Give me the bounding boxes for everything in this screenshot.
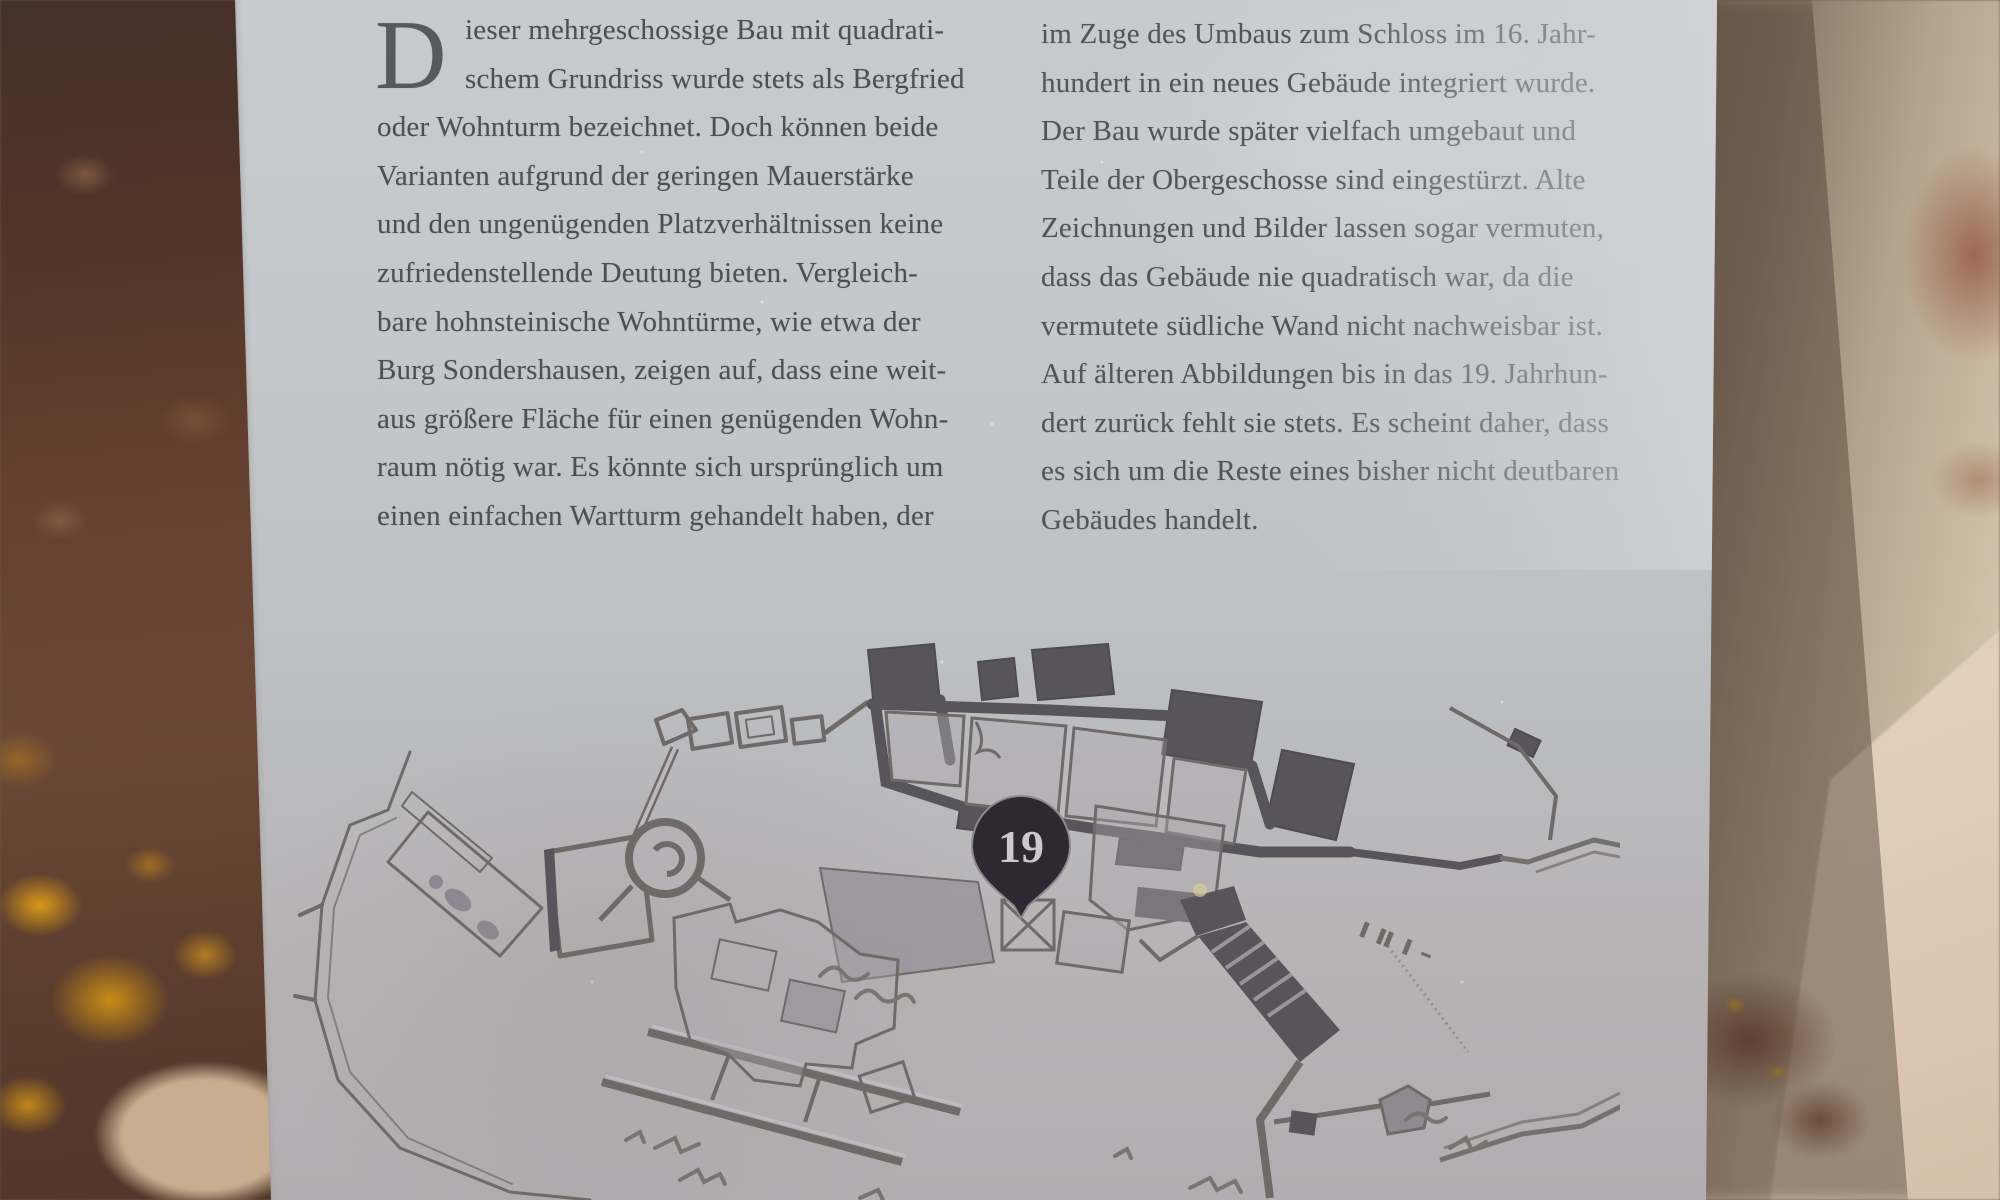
ramp-structure bbox=[1140, 886, 1340, 1198]
text-column-right: im Zuge des Umbaus zum Schloss im 16. Ja… bbox=[1041, 10, 1681, 545]
text-line: Varianten aufgrund der geringen Mauerstä… bbox=[377, 152, 1017, 201]
lichen-speck-on-plate bbox=[1193, 883, 1207, 897]
text-line: und den ungenügenden Platzverhältnissen … bbox=[377, 200, 1017, 249]
castle-ground-plan: 19 bbox=[260, 600, 1620, 1200]
text-line: Zeichnungen und Bilder lassen sogar verm… bbox=[1041, 204, 1681, 253]
northeast-wall bbox=[1450, 708, 1556, 840]
text-line: es sich um die Reste eines bisher nicht … bbox=[1041, 447, 1681, 496]
photo-of-information-plaque: D ieser mehrgeschossige Bau mit quadrati… bbox=[0, 0, 2000, 1200]
text-line: Der Bau wurde später vielfach umgebaut u… bbox=[1041, 107, 1681, 156]
map-scale-ticks bbox=[1359, 921, 1434, 964]
drop-cap: D bbox=[375, 8, 447, 103]
text-line: Teile der Obergeschosse sind eingestürzt… bbox=[1041, 156, 1681, 205]
pentagon-bastion bbox=[1274, 1086, 1490, 1136]
text-line: dass das Gebäude nie quadratisch war, da… bbox=[1041, 253, 1681, 302]
outer-bailey-outline bbox=[295, 752, 652, 1200]
text-line: Gebäudes handelt. bbox=[1041, 496, 1681, 545]
text-line: raum nötig war. Es könnte sich ursprüngl… bbox=[377, 443, 1017, 492]
text-line: ieser mehrgeschossige Bau mit quadrati- bbox=[377, 6, 1017, 55]
marker-number: 19 bbox=[998, 821, 1044, 872]
text-line: oder Wohnturm bezeichnet. Doch können be… bbox=[377, 103, 1017, 152]
faint-wall-label bbox=[1388, 946, 1468, 1052]
text-line: einen einfachen Wartturm gehandelt haben… bbox=[377, 492, 1017, 541]
text-line: Burg Sondershausen, zeigen auf, dass ein… bbox=[377, 346, 1017, 395]
text-column-left: D ieser mehrgeschossige Bau mit quadrati… bbox=[377, 6, 1017, 541]
bailey-building-remnants bbox=[429, 848, 560, 952]
text-line: Auf älteren Abbildungen bis in das 19. J… bbox=[1041, 350, 1681, 399]
east-bastion-outline bbox=[1440, 840, 1620, 1160]
text-line: im Zuge des Umbaus zum Schloss im 16. Ja… bbox=[1041, 10, 1681, 59]
text-line: zufriedenstellende Deutung bieten. Vergl… bbox=[377, 249, 1017, 298]
lower-terraces bbox=[602, 868, 1129, 1162]
text-line: hundert in ein neues Gebäude integriert … bbox=[1041, 59, 1681, 108]
text-line: aus größere Fläche für einen genügenden … bbox=[377, 395, 1017, 444]
text-line: schem Grundriss wurde stets als Bergfrie… bbox=[377, 55, 1017, 104]
text-line: vermutete südliche Wand nicht nachweisba… bbox=[1041, 302, 1681, 351]
text-line: bare hohnsteinische Wohntürme, wie etwa … bbox=[377, 298, 1017, 347]
text-line: dert zurück fehlt sie stets. Es scheint … bbox=[1041, 399, 1681, 448]
round-tower bbox=[600, 822, 730, 920]
info-plaque: D ieser mehrgeschossige Bau mit quadrati… bbox=[0, 0, 2000, 1200]
